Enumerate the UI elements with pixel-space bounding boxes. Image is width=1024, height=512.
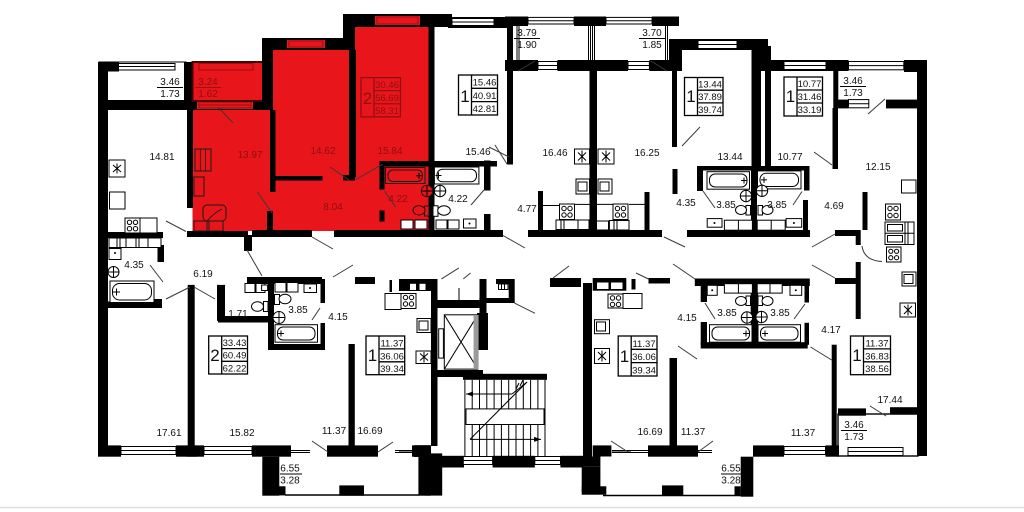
svg-text:39.74: 39.74 xyxy=(698,105,722,116)
svg-text:3.85: 3.85 xyxy=(716,200,736,211)
svg-text:16.25: 16.25 xyxy=(634,148,659,159)
svg-text:42.81: 42.81 xyxy=(473,104,497,115)
svg-text:33.19: 33.19 xyxy=(798,105,822,116)
svg-text:6.19: 6.19 xyxy=(193,269,213,280)
svg-text:1: 1 xyxy=(368,346,377,365)
svg-text:3.85: 3.85 xyxy=(717,308,737,319)
svg-text:2: 2 xyxy=(363,89,372,108)
svg-text:4.22: 4.22 xyxy=(448,194,468,205)
svg-text:11.37: 11.37 xyxy=(322,426,347,437)
svg-text:36.06: 36.06 xyxy=(632,352,656,363)
svg-text:36.83: 36.83 xyxy=(865,351,889,362)
svg-text:1.73: 1.73 xyxy=(844,432,864,443)
svg-text:4.15: 4.15 xyxy=(677,313,697,324)
svg-text:4.35: 4.35 xyxy=(676,198,696,209)
svg-text:11.37: 11.37 xyxy=(791,428,816,439)
svg-text:38.56: 38.56 xyxy=(865,364,889,375)
svg-text:30.46: 30.46 xyxy=(375,80,399,91)
svg-text:1: 1 xyxy=(786,87,795,106)
svg-text:1: 1 xyxy=(686,87,695,106)
svg-text:33.43: 33.43 xyxy=(223,338,247,349)
svg-text:4.69: 4.69 xyxy=(824,201,844,212)
svg-text:11.37: 11.37 xyxy=(380,338,403,349)
svg-text:1: 1 xyxy=(852,346,861,365)
svg-text:11.37: 11.37 xyxy=(681,427,706,438)
svg-text:39.34: 39.34 xyxy=(380,364,404,375)
svg-text:62.22: 62.22 xyxy=(223,363,247,374)
svg-text:3.85: 3.85 xyxy=(767,200,787,211)
svg-text:12.15: 12.15 xyxy=(865,162,890,173)
svg-text:1: 1 xyxy=(460,87,469,106)
svg-text:31.46: 31.46 xyxy=(798,92,822,103)
svg-text:13.97: 13.97 xyxy=(237,150,262,161)
svg-text:16.69: 16.69 xyxy=(637,427,662,438)
svg-text:3.85: 3.85 xyxy=(288,305,308,316)
svg-text:16.46: 16.46 xyxy=(542,148,567,159)
svg-text:15.46: 15.46 xyxy=(473,78,497,89)
svg-text:6.55: 6.55 xyxy=(280,464,300,475)
svg-text:40.91: 40.91 xyxy=(473,91,497,102)
svg-text:13.44: 13.44 xyxy=(698,80,722,91)
svg-text:3.85: 3.85 xyxy=(770,308,790,319)
svg-text:4.77: 4.77 xyxy=(517,204,537,215)
svg-text:1.90: 1.90 xyxy=(517,40,537,51)
svg-text:1.62: 1.62 xyxy=(198,89,218,100)
svg-text:4.17: 4.17 xyxy=(821,325,841,336)
svg-text:11.37: 11.37 xyxy=(865,338,888,349)
svg-text:6.55: 6.55 xyxy=(721,464,741,475)
svg-text:15.84: 15.84 xyxy=(377,146,402,157)
svg-text:15.82: 15.82 xyxy=(229,428,254,439)
svg-text:36.06: 36.06 xyxy=(380,351,404,362)
svg-text:2: 2 xyxy=(210,346,219,365)
svg-text:37.89: 37.89 xyxy=(698,92,722,103)
svg-text:3.79: 3.79 xyxy=(517,28,537,39)
svg-text:60.49: 60.49 xyxy=(223,351,247,362)
svg-text:14.62: 14.62 xyxy=(310,146,335,157)
svg-text:8.04: 8.04 xyxy=(323,202,343,213)
svg-text:3.70: 3.70 xyxy=(642,28,662,39)
svg-text:3.24: 3.24 xyxy=(198,77,218,88)
svg-text:3.28: 3.28 xyxy=(721,476,741,487)
svg-text:1.85: 1.85 xyxy=(642,40,662,51)
svg-text:1.73: 1.73 xyxy=(160,89,180,100)
svg-text:13.44: 13.44 xyxy=(717,152,742,163)
svg-text:16.69: 16.69 xyxy=(357,426,382,437)
svg-text:10.77: 10.77 xyxy=(798,79,822,90)
svg-text:3.46: 3.46 xyxy=(844,420,864,431)
svg-text:39.34: 39.34 xyxy=(632,365,656,376)
svg-text:56.69: 56.69 xyxy=(375,93,399,104)
svg-text:1: 1 xyxy=(620,347,629,366)
svg-text:17.44: 17.44 xyxy=(877,395,902,406)
svg-text:10.77: 10.77 xyxy=(777,152,802,163)
svg-text:3.46: 3.46 xyxy=(160,77,180,88)
svg-text:4.35: 4.35 xyxy=(124,260,144,271)
svg-text:15.46: 15.46 xyxy=(465,147,490,158)
svg-text:1.71: 1.71 xyxy=(228,309,248,320)
svg-text:3.46: 3.46 xyxy=(843,76,863,87)
svg-text:14.81: 14.81 xyxy=(149,152,174,163)
svg-text:4.15: 4.15 xyxy=(328,312,348,323)
svg-text:1.73: 1.73 xyxy=(843,88,863,99)
svg-text:4.22: 4.22 xyxy=(388,194,408,205)
svg-text:3.28: 3.28 xyxy=(280,476,300,487)
svg-text:11.37: 11.37 xyxy=(632,339,655,350)
svg-text:58.31: 58.31 xyxy=(375,106,399,117)
svg-text:17.61: 17.61 xyxy=(156,428,181,439)
